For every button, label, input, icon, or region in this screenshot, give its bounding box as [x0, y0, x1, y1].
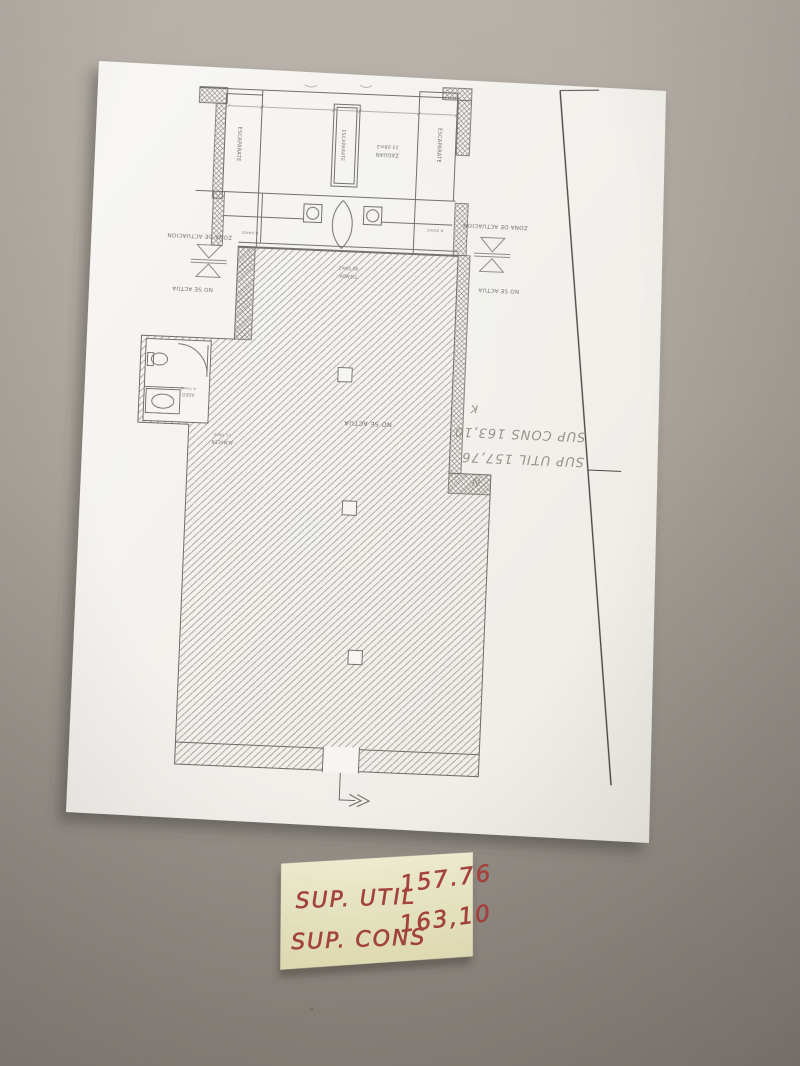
- pencil-mark-bottom: N: [471, 475, 481, 488]
- bathroom: [143, 338, 211, 423]
- room-label-almacen: ALMACEN: [211, 439, 233, 445]
- area-note-left: 8.04m2: [241, 230, 258, 236]
- room-area-almacen: 17.19m2: [213, 432, 231, 437]
- room-area-zaguan: 23.08m2: [376, 143, 398, 150]
- room-area-aseo: 4.70m2: [181, 386, 196, 391]
- paper-sheet: ESCAPARATE ESCAPARATE ESCAPARATE 23.08m2…: [66, 61, 666, 843]
- photo-svg: ESCAPARATE ESCAPARATE ESCAPARATE 23.08m2…: [0, 0, 800, 1066]
- room-label-zaguan: ZAGUAN: [376, 151, 399, 158]
- room-label-tienda: TIENDA: [338, 272, 358, 279]
- wall-speck: [310, 1007, 313, 1010]
- room-label-aseo: ASEO: [182, 392, 194, 398]
- pencil-mark-top: K: [469, 402, 478, 415]
- area-note-right: 6.30m2: [427, 228, 444, 234]
- room-area-tienda: 40.50m2: [338, 265, 358, 271]
- photo-background: ESCAPARATE ESCAPARATE ESCAPARATE 23.08m2…: [0, 0, 800, 1066]
- sticky-note: SUP. UTIL 157.76 SUP. CONS 163,10: [276, 851, 497, 969]
- sticky-line1-label: SUP. UTIL: [295, 884, 416, 914]
